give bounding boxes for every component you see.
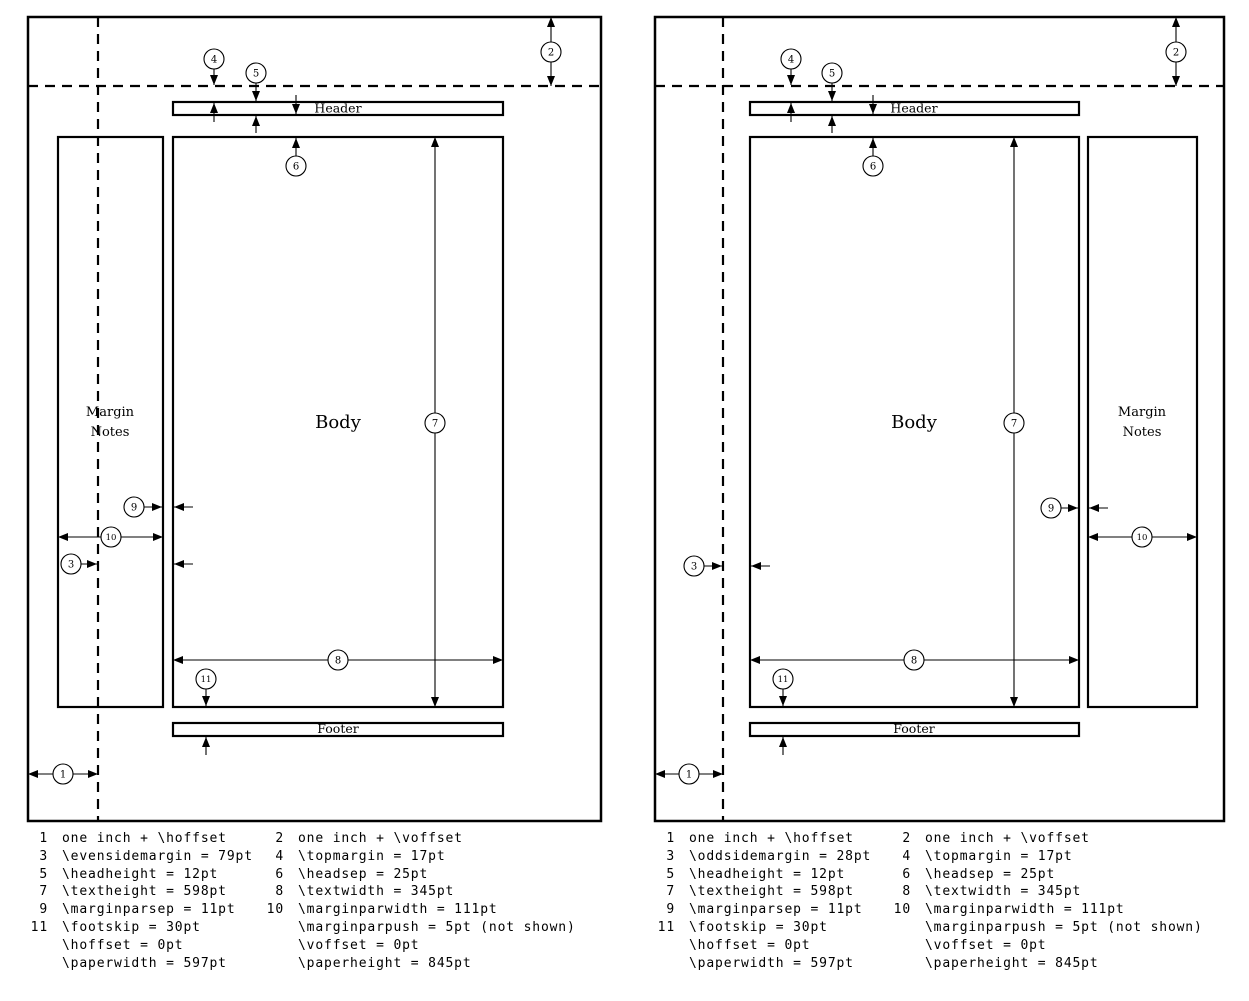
- legend-text: \footskip = 30pt: [62, 919, 249, 937]
- legend-text: one inch + \hoffset: [62, 830, 249, 848]
- callout-number: 6: [870, 162, 876, 173]
- legend-row: 9\marginparsep = 11pt10\marginparwidth =…: [28, 901, 576, 919]
- callout-number: 3: [691, 562, 697, 573]
- legend-text: \paperheight = 845pt: [925, 955, 1203, 973]
- legend-text: \evensidemargin = 79pt: [62, 848, 249, 866]
- callout-number: 3: [68, 560, 74, 571]
- callout-11-footskip: 11: [773, 669, 793, 755]
- callout-10-marginparwidth: 10: [58, 527, 163, 547]
- legend-text: \topmargin = 17pt: [925, 848, 1203, 866]
- callout-5-headheight: 5: [246, 63, 266, 133]
- callout-number: 4: [211, 55, 217, 66]
- margin-notes-label-line1: Margin: [1118, 405, 1167, 420]
- footer-label: Footer: [317, 721, 358, 736]
- callout-number: 9: [131, 503, 137, 514]
- callout-number: 1: [686, 770, 692, 781]
- legend-row: \hoffset = 0pt\voffset = 0pt: [28, 937, 576, 955]
- legend-num: 11: [655, 919, 675, 937]
- legend-even-page: 1one inch + \hoffset2one inch + \voffset…: [28, 830, 576, 972]
- callout-number: 4: [788, 55, 794, 66]
- margin-notes-box: [58, 137, 163, 707]
- callout-number: 2: [1173, 48, 1179, 59]
- callout-number: 10: [1137, 533, 1148, 543]
- legend-num: 3: [655, 848, 675, 866]
- legend-text: \voffset = 0pt: [298, 937, 576, 955]
- legend-num: 1: [655, 830, 675, 848]
- legend-text: \textwidth = 345pt: [925, 883, 1203, 901]
- callout-number: 11: [778, 675, 789, 685]
- callout-5-headheight: 5: [822, 63, 842, 133]
- legend-num: 2: [263, 830, 284, 848]
- legend-text: \marginparsep = 11pt: [62, 901, 249, 919]
- callout-number: 9: [1048, 504, 1054, 515]
- legend-num: [28, 937, 48, 955]
- legend-num: [655, 955, 675, 973]
- legend-row: 5\headheight = 12pt6\headsep = 25pt: [28, 866, 576, 884]
- callout-2-voffset: 2: [541, 17, 561, 86]
- legend-row: 7\textheight = 598pt8\textwidth = 345pt: [28, 883, 576, 901]
- legend-num: 10: [263, 901, 284, 919]
- footer-label: Footer: [893, 721, 934, 736]
- callout-9-marginparsep: 9: [1041, 498, 1108, 518]
- legend-text: \headsep = 25pt: [925, 866, 1203, 884]
- header-label: Header: [890, 101, 937, 116]
- legend-text: one inch + \voffset: [925, 830, 1203, 848]
- legend-text: \marginparpush = 5pt (not shown): [925, 919, 1203, 937]
- callout-number: 7: [1011, 419, 1017, 430]
- legend-text: \hoffset = 0pt: [62, 937, 249, 955]
- legend-num: 6: [263, 866, 284, 884]
- legend-num: 11: [28, 919, 48, 937]
- callout-11-footskip: 11: [196, 669, 216, 755]
- legend-row: 11\footskip = 30pt\marginparpush = 5pt (…: [28, 919, 576, 937]
- legend-text: \topmargin = 17pt: [298, 848, 576, 866]
- legend-num: [890, 919, 911, 937]
- margin-notes-label-line2: Notes: [91, 425, 130, 440]
- legend-text: \footskip = 30pt: [689, 919, 876, 937]
- legend-num: 1: [28, 830, 48, 848]
- legend-text: \headsep = 25pt: [298, 866, 576, 884]
- legend-text: \textheight = 598pt: [689, 883, 876, 901]
- legend-odd-page: 1one inch + \hoffset2one inch + \voffset…: [655, 830, 1203, 972]
- legend-num: 9: [28, 901, 48, 919]
- legend-row: \paperwidth = 597pt\paperheight = 845pt: [655, 955, 1203, 973]
- legend-num: 4: [263, 848, 284, 866]
- legend-row: 7\textheight = 598pt8\textwidth = 345pt: [655, 883, 1203, 901]
- legend-num: 9: [655, 901, 675, 919]
- margin-notes-box: [1088, 137, 1197, 707]
- margin-notes-label-line1: Margin: [86, 405, 135, 420]
- callout-number: 2: [548, 48, 554, 59]
- callout-number: 5: [829, 69, 835, 80]
- legend-row: 3\evensidemargin = 79pt4\topmargin = 17p…: [28, 848, 576, 866]
- callout-number: 10: [106, 533, 117, 543]
- callout-number: 1: [60, 770, 66, 781]
- callout-10-marginparwidth: 10: [1088, 527, 1197, 547]
- callout-number: 6: [293, 162, 299, 173]
- margin-notes-label-line2: Notes: [1123, 425, 1162, 440]
- legend-text: \marginparwidth = 111pt: [925, 901, 1203, 919]
- legend-num: 7: [655, 883, 675, 901]
- callout-7-textheight: 7: [425, 137, 445, 707]
- legend-text: \paperwidth = 597pt: [689, 955, 876, 973]
- legend-num: 7: [28, 883, 48, 901]
- legend-num: 8: [890, 883, 911, 901]
- legend-num: [263, 955, 284, 973]
- legend-text: \headheight = 12pt: [62, 866, 249, 884]
- legend-num: [655, 937, 675, 955]
- legend-num: 8: [263, 883, 284, 901]
- callout-number: 8: [911, 656, 917, 667]
- callout-number: 11: [201, 675, 212, 685]
- legend-row: 5\headheight = 12pt6\headsep = 25pt: [655, 866, 1203, 884]
- legend-row: 11\footskip = 30pt\marginparpush = 5pt (…: [655, 919, 1203, 937]
- header-label: Header: [314, 101, 361, 116]
- legend-text: \hoffset = 0pt: [689, 937, 876, 955]
- callout-8-textwidth: 8: [173, 650, 503, 670]
- callout-2-voffset: 2: [1166, 17, 1186, 86]
- odd-page-diagram: Header Body Footer Margin Notes 1 2 3 4: [655, 17, 1224, 821]
- legend-num: [890, 937, 911, 955]
- legend-text: \marginparwidth = 111pt: [298, 901, 576, 919]
- latex-page-layout-figure: Header Body Footer Margin Notes 1 2 3 4: [0, 0, 1249, 1001]
- callout-6-headsep: 6: [863, 95, 883, 176]
- legend-num: 4: [890, 848, 911, 866]
- legend-text: \textwidth = 345pt: [298, 883, 576, 901]
- legend-num: 10: [890, 901, 911, 919]
- legend-row: \paperwidth = 597pt\paperheight = 845pt: [28, 955, 576, 973]
- callout-1-hoffset: 1: [28, 764, 98, 784]
- legend-num: [263, 919, 284, 937]
- legend-text: one inch + \voffset: [298, 830, 576, 848]
- legend-text: \textheight = 598pt: [62, 883, 249, 901]
- legend-text: one inch + \hoffset: [689, 830, 876, 848]
- body-label: Body: [891, 412, 938, 433]
- legend-num: 5: [655, 866, 675, 884]
- legend-num: 3: [28, 848, 48, 866]
- legend-row: 1one inch + \hoffset2one inch + \voffset: [655, 830, 1203, 848]
- legend-num: [263, 937, 284, 955]
- callout-7-textheight: 7: [1004, 137, 1024, 707]
- legend-num: [28, 955, 48, 973]
- callout-8-textwidth: 8: [750, 650, 1079, 670]
- legend-row: 1one inch + \hoffset2one inch + \voffset: [28, 830, 576, 848]
- legend-row: 9\marginparsep = 11pt10\marginparwidth =…: [655, 901, 1203, 919]
- even-page-diagram: Header Body Footer Margin Notes 1 2 3 4: [28, 17, 601, 821]
- legend-row: 3\oddsidemargin = 28pt4\topmargin = 17pt: [655, 848, 1203, 866]
- legend-num: [890, 955, 911, 973]
- legend-text: \paperheight = 845pt: [298, 955, 576, 973]
- legend-text: \marginparsep = 11pt: [689, 901, 876, 919]
- legend-text: \oddsidemargin = 28pt: [689, 848, 876, 866]
- legend-text: \paperwidth = 597pt: [62, 955, 249, 973]
- callout-1-hoffset: 1: [655, 764, 723, 784]
- legend-num: 6: [890, 866, 911, 884]
- legend-row: \hoffset = 0pt\voffset = 0pt: [655, 937, 1203, 955]
- callout-9-marginparsep: 9: [124, 497, 193, 517]
- legend-num: 5: [28, 866, 48, 884]
- legend-text: \marginparpush = 5pt (not shown): [298, 919, 576, 937]
- callout-number: 8: [335, 656, 341, 667]
- callout-6-headsep: 6: [286, 95, 306, 176]
- legend-text: \voffset = 0pt: [925, 937, 1203, 955]
- legend-num: 2: [890, 830, 911, 848]
- legend-text: \headheight = 12pt: [689, 866, 876, 884]
- callout-3-oddsidemargin: 3: [684, 556, 770, 576]
- body-label: Body: [315, 412, 362, 433]
- callout-number: 7: [432, 419, 438, 430]
- callout-number: 5: [253, 69, 259, 80]
